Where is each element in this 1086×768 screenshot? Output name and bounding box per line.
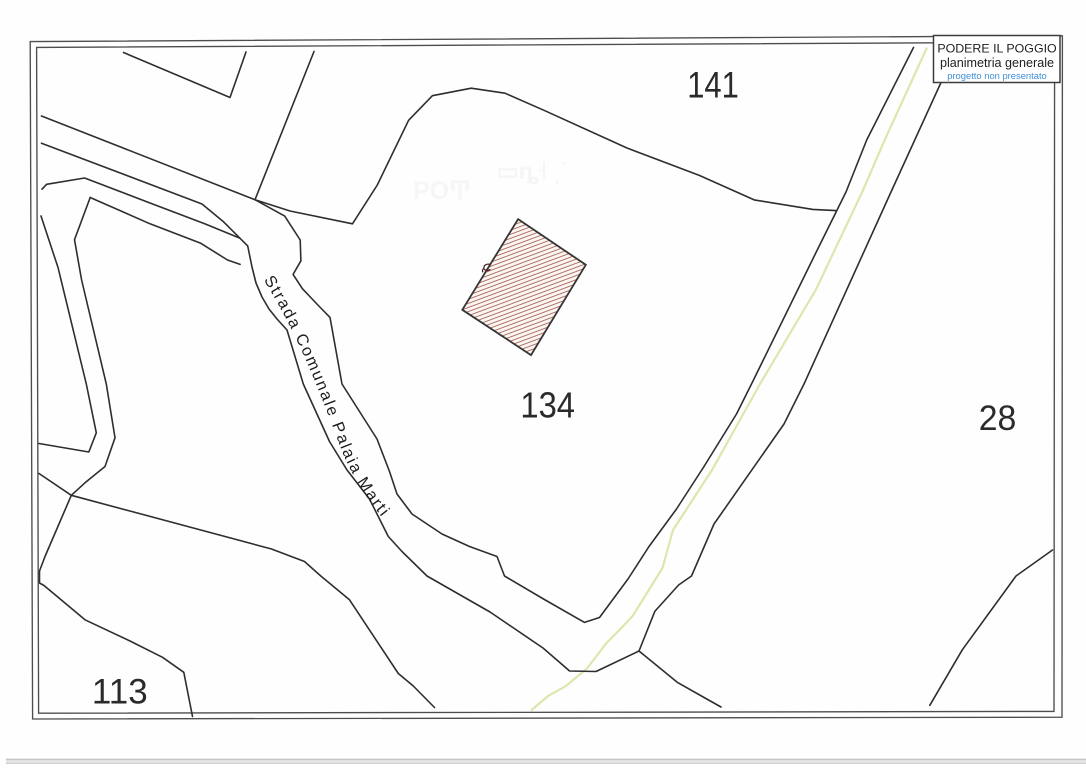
svg-text:PODERE IL POGGIO: PODERE IL POGGIO [937, 42, 1057, 56]
svg-text:planimetria generale: planimetria generale [940, 56, 1054, 70]
svg-text:28: 28 [979, 399, 1017, 438]
svg-text:134: 134 [520, 384, 575, 425]
svg-text:113: 113 [92, 671, 148, 711]
svg-text:▭ȵ˧ ˌ˙: ▭ȵ˧ ˌ˙ [497, 158, 568, 184]
svg-text:POͲ: POͲ [413, 177, 471, 205]
svg-text:progetto non presentato: progetto non presentato [947, 70, 1047, 81]
svg-text:Strada Comunale Palaia Marti: Strada Comunale Palaia Marti [260, 272, 394, 520]
svg-text:141: 141 [687, 65, 739, 106]
